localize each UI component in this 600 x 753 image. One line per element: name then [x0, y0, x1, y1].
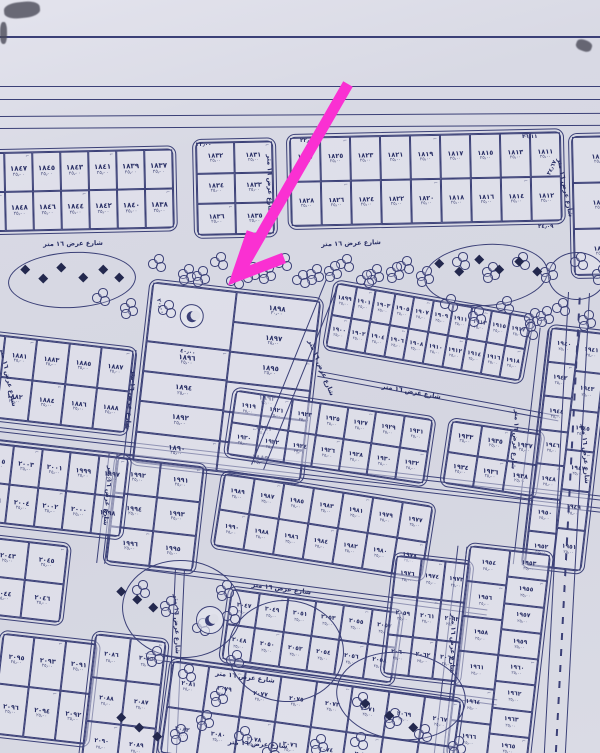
plot-number: ٢٠٠٠	[71, 505, 88, 514]
tree-icon	[292, 270, 308, 286]
scan-artifact	[575, 38, 594, 54]
plot: ١٩٢٣٢٥٫٠٠	[288, 399, 321, 435]
plot: ١٩٣٤٢٥٫٠٠	[443, 452, 477, 487]
plot-dimension: ٢٥٫٠٠	[488, 444, 499, 450]
plot-dimension: ٢٥٫٠٠	[471, 671, 481, 676]
plot: ١٨٨٤٢٥٫٠٠⌐	[28, 381, 65, 425]
road-median-dashes	[554, 297, 580, 753]
plot: ١٩١٥٢٥٫٠٠	[486, 311, 511, 346]
plot-dimension: ٢٥٫٠٠	[174, 483, 185, 489]
plot-dimension: ٢٥٫٠٠	[267, 342, 279, 348]
plot-dimension: ٢٥٫٠٠	[338, 301, 348, 307]
plot-number: ١٨٤٠	[123, 202, 140, 210]
plot-number: ١٨٢٦	[328, 197, 344, 204]
plot-number: ١٩٩٧	[104, 470, 121, 479]
plot-dimension: ٢٥٫٠٠	[401, 578, 411, 583]
plot-number: ١٨٣٤	[208, 183, 224, 190]
setback-mark: ⌐	[459, 340, 464, 346]
plot-row: ١٨٨٠٢٥٫٠٠١٨٨٢٢٥٫٠٠١٨٨٤٢٥٫٠٠⌐١٨٨٦٢٥٫٠٠١٨٨…	[0, 373, 129, 432]
plot-dimension: ٢٥٫٠٠	[358, 305, 368, 311]
setback-mark: ⌐	[35, 450, 39, 455]
plot-dimension: ٢٥٫٠٠	[173, 422, 185, 428]
plot-dimension: ٣٠٫٠٠	[270, 313, 282, 319]
plot-dimension: ٢٥٫٠٠	[586, 353, 596, 358]
plot-number: ١٩٠٧	[414, 308, 429, 317]
plot-dimension: ٢٥٫٠٠	[517, 619, 527, 624]
plot: ١٨٢٣٢٥٫٠٠	[350, 136, 381, 181]
plot-row: ١٨٧٩٢٥٫٠٠١٨٨١٢٥٫٠٠⌐١٨٨٣٢٥٫٠٠١٨٨٥٢٥٫٠٠١٨٨…	[0, 333, 133, 392]
plot: ١٩٢٨٢٥٫٠٠	[339, 439, 372, 475]
tree-icon	[146, 646, 162, 662]
plot-number: ١٨٢٢	[388, 196, 404, 203]
plot-dimension: ٢٥٫٠٠	[451, 202, 462, 207]
plot-dimension: ٢٥٫٠٠	[595, 207, 600, 212]
plot-dimension: ٢٥٫٠٠	[130, 749, 140, 753]
plot-number: ١٩٣١	[409, 427, 424, 436]
plot-number: ٢٠٤٥	[38, 557, 55, 566]
tree-icon	[192, 266, 208, 282]
plot-number: ١٩٨٨	[254, 528, 270, 537]
tree-icon	[578, 310, 594, 326]
plot: ١٩٦٢٢٥٫٠٠	[492, 681, 535, 712]
setback-mark: ⌐	[196, 469, 200, 474]
road	[96, 454, 117, 564]
plot-dimension: ٢٥٫٠٠	[361, 204, 372, 209]
plot-number: ٢٠٨٦	[104, 652, 119, 660]
plot-number: ١٨٠٦	[591, 154, 600, 161]
plot-dimension: ٢٥٫٠٠	[523, 567, 533, 572]
plot-dimension: ٢٥٫٠٠	[106, 477, 117, 483]
plot: ١٩٣٢٢٥٫٠٠⌐	[395, 447, 428, 483]
setback-mark: ⌐	[430, 641, 434, 646]
plot-number: ٢٠٦٤	[440, 654, 455, 662]
plot: ١٨١٧٢٥٫٠٠	[440, 134, 471, 179]
tree-icon	[222, 606, 238, 622]
tree-icon	[196, 710, 212, 726]
plot: ١٨٣٨٢٥٫٠٠⌐	[145, 188, 174, 228]
plot-row: ٢٠٤٤٢٥٫٠٠٢٠٤٦٢٥٫٠٠	[0, 576, 64, 623]
plot: ٢٠٠٦٢٥٫٠٠	[0, 481, 9, 523]
plot-dimension: ٢٥٫٠٠	[391, 203, 402, 208]
plot-dimension: ٢٥٫٠٠	[48, 471, 59, 477]
plot-number: ١٩٨٢	[343, 542, 359, 551]
plot-dimension: ٢٥٫٠٠	[410, 346, 420, 352]
plot: ١٨٨٥٢٥٫٠٠	[65, 343, 102, 387]
plot-number: ١٨٢٧	[297, 154, 313, 161]
tree-icon	[132, 580, 148, 596]
plot-number: ١٨١٣	[507, 149, 523, 156]
plot-number: ١٩٣٨	[512, 472, 529, 481]
plot-dimension: ٢٥٫٠٠	[69, 172, 81, 177]
plot-dimension: ٢٥٫٠٠	[36, 714, 47, 720]
plot: ١٨٨٣٢٥٫٠٠	[33, 340, 70, 384]
setback-mark: ⌐	[375, 738, 379, 743]
tree-icon	[570, 252, 586, 268]
scan-artifact	[3, 0, 40, 20]
plot-dimension: ٢٥٫٠٠	[248, 158, 259, 163]
tree-icon	[210, 252, 226, 268]
plot-number: ٢٠٩١	[71, 661, 88, 670]
plot-dimension: ٢٥٫٠٠	[104, 411, 115, 417]
plot-number: ١٩٠٨	[409, 340, 424, 349]
street-label: شارع عرض ١٦ متر	[228, 738, 288, 750]
plot: ١٨١٦٢٥٫٠٠	[471, 178, 502, 223]
crescent-icon	[203, 613, 217, 627]
plot-dimension: ٢٥٫٠٠	[320, 509, 331, 515]
plot-number: ١٩٩٨	[99, 509, 116, 518]
plot-dimension: ٢٥٫٠٠	[484, 475, 495, 481]
plot-number: ١٨٩٤	[175, 384, 193, 394]
plot-number: ٢٠٩٣	[39, 657, 56, 666]
tree-icon	[356, 270, 372, 286]
plot-dimension: ٢٥٫٠٠	[594, 161, 600, 166]
setback-mark: ⌐	[126, 352, 130, 357]
plot-number: ١٩٧٤	[424, 573, 439, 581]
plot: ١٩٩٢٢٥٫٠٠	[114, 458, 161, 497]
plot-dimension: ٢٥٫٠٠	[421, 619, 431, 624]
plot-dimension: ٢٥٫٠٠	[468, 357, 478, 363]
plot-number: ١٩٩٩	[75, 467, 92, 476]
plot-number: ٢٠٨١	[181, 680, 196, 689]
plot: ١٩١٦٢٥٫٠٠	[481, 342, 506, 377]
plot-number: ١٨٨٨	[102, 403, 119, 412]
plot: ١٩٦٠٢٥٫٠٠⌐	[495, 655, 538, 686]
tree-icon	[258, 263, 274, 279]
plot-number: ٢٠٠٢	[42, 502, 59, 511]
plot-dimension: ٢٥٫٠٠	[15, 506, 26, 512]
plot: ١٨٢٨٢٥٫٠٠	[291, 181, 322, 226]
plot-number: ١٨١٨	[448, 195, 464, 202]
plot-dimension: ٢٥٫٠٠	[72, 668, 83, 674]
plot-number: ١٩٨٦	[283, 533, 299, 542]
plot: ١٩٨٣٢٥٫٠٠	[308, 488, 343, 528]
plot-block-e2: ٢٠٤٣٢٥٫٠٠٢٠٤٥٢٥٫٠٠⌐٢٠٤٤٢٥٫٠٠٢٠٤٦٢٥٫٠٠	[0, 537, 69, 624]
plot-dimension: ٢٥٫٠٠	[77, 366, 88, 372]
plot: ١٩٢٥٢٥٫٠٠	[316, 403, 349, 439]
crescent-icon	[185, 310, 198, 323]
plot-dimension: ٢٥٫٠٠	[377, 308, 387, 314]
road	[123, 350, 145, 458]
plot: ١٨٤٨٢٥٫٠٠	[5, 191, 34, 231]
plot: ١٨٩٢٢٥٫٠٠	[136, 401, 223, 441]
plot-number: ٢٠٤٤	[0, 590, 12, 599]
setback-mark: ⌐	[223, 352, 227, 357]
plot-dimension: ٢٥٫٠٠	[124, 547, 135, 553]
setback-mark: ⌐	[330, 529, 335, 535]
tree-icon	[452, 252, 468, 268]
plot-row: ٢٠٩٠٢٥٫٠٠⌐٢٠٨٩٢٥٫٠٠	[81, 720, 155, 753]
plot: ١٩٣٨٢٥٫٠٠	[503, 461, 537, 496]
plot: ١٩٧٦٢٥٫٠٠	[392, 556, 421, 598]
plot: ١٨٢٥٢٥٫٠٠⌐	[320, 137, 351, 182]
tree-icon	[448, 736, 464, 752]
plot-dimension: ٢٥٫٠٠	[40, 564, 51, 570]
plot-number: ١٩٠٩	[433, 312, 448, 321]
dimension-note: ٢٢٫٠٠	[196, 142, 211, 148]
plot-number: ١٩٣٣	[457, 432, 474, 441]
plot-dimension: ٢٥٫٠٠	[507, 363, 517, 369]
setback-mark: ⌐	[420, 453, 424, 459]
plot: ١٩٩٩٢٥٫٠٠	[67, 452, 100, 494]
plot-dimension: ٢٥٫٠٠	[96, 745, 106, 750]
plot-number: ١٩٨٩	[230, 488, 246, 497]
plot-number: ١٨٨٣	[43, 355, 60, 364]
plot-dimension: ٢٥٫٠٠	[132, 478, 143, 484]
plot-dimension: ٢٥٫٠٠	[77, 474, 88, 480]
setback-mark: ⌐	[296, 452, 300, 457]
setback-mark: ⌐	[277, 484, 282, 490]
plot-dimension: ٢٥٫٠٠	[238, 441, 249, 447]
plot: ١٨٢٧٢٥٫٠٠	[290, 137, 321, 182]
plot-dimension: ٢٥٫٠٠	[540, 156, 551, 161]
plot-dimension: ٢٥٫٠٠	[344, 549, 355, 555]
plot: ٢٠٤٥٢٥٫٠٠⌐	[25, 542, 68, 584]
plot-dimension: ٢٥٫٠٠	[420, 158, 431, 163]
plot-dimension: ٢٥٫٠٠	[397, 617, 407, 622]
setback-mark: ⌐	[434, 181, 438, 186]
plot-number: ١٨٢٠	[418, 195, 434, 202]
setback-mark: ⌐	[58, 642, 62, 647]
tree-icon	[592, 264, 600, 280]
plot: ١٩٢٧٢٥٫٠٠⌐	[344, 407, 377, 443]
plot-dimension: ٢٥٫٠٠	[73, 513, 84, 519]
plot-number: ١٩٩٢	[130, 471, 147, 480]
setback-mark: ⌐	[433, 137, 437, 142]
plot-number: ١٩٥٠	[537, 509, 552, 517]
plot: ١٩٠٨٢٥٫٠٠	[403, 329, 428, 364]
plot-number: ١٨٨٦	[70, 400, 87, 409]
plot-dimension: ٢٥٫٠٠	[493, 328, 503, 334]
plot-number: ١٩٣٠	[376, 455, 391, 464]
setback-mark: ⌐	[212, 442, 216, 447]
setback-mark: ⌐	[365, 498, 370, 504]
plot-dimension: ٢٥٫٠٠	[13, 173, 25, 178]
setback-mark: ⌐	[539, 583, 543, 588]
plot-dimension: ٢٥٫٠٠	[403, 558, 414, 564]
plot: ١٩٩٨٢٥٫٠٠	[91, 494, 124, 536]
tree-icon	[160, 596, 176, 612]
plot-number: ١٨٩٢	[171, 414, 189, 424]
setback-mark: ⌐	[517, 350, 522, 356]
plot-dimension: ٢٥٫٠٠	[547, 448, 557, 453]
plot-number: ١٩٦٣	[503, 716, 518, 724]
plot: ١٩٨٥٢٥٫٠٠	[279, 483, 314, 523]
plot: ١٩٩٦٢٥٫٠٠⌐	[106, 527, 153, 566]
plot-number: ١٨٤٢	[95, 203, 112, 211]
plot: ١٨٢١٢٥٫٠٠	[380, 135, 411, 180]
setback-mark: ⌐	[60, 548, 64, 553]
plot-row: ١٨٠٦٢٥٫٠٠	[572, 136, 600, 183]
plot-dimension: ٢٥٫٠٠	[333, 333, 343, 339]
tree-icon	[148, 254, 164, 270]
plot: ٢٠٤٣٢٥٫٠٠	[0, 538, 29, 580]
plot-dimension: ٢٥٫٠٠	[128, 513, 139, 519]
plot-number: ٢٠٠٣	[18, 460, 35, 469]
plot: ٢٠٠٠٢٥٫٠٠	[62, 491, 95, 533]
plot-dimension: ٢٥٫٠٠	[231, 495, 242, 501]
setback-mark: ⌐	[53, 692, 57, 697]
plot-number: ٢٠٦١	[420, 613, 435, 621]
plot-dimension: ٢٥٫٠٠	[20, 468, 31, 474]
plot: ١٩٥٢٢٥٫٠٠	[525, 531, 557, 568]
plot-number: ١٨٤١	[94, 164, 111, 172]
plot: ٢٠٤٦٢٥٫٠٠	[21, 580, 64, 622]
plot-number: ٢٠٨٩	[129, 742, 144, 750]
street-label: شارع عرض ١٦ متر	[556, 158, 575, 218]
plot-dimension: ٢٥٫٠٠	[36, 602, 47, 608]
plot-number: ١٨١٢	[538, 193, 554, 200]
plot: ١٩٥٧٢٥٫٠٠	[501, 603, 544, 634]
mosque-icon	[178, 303, 205, 330]
plot-dimension: ٢٥٫٠٠	[42, 212, 54, 217]
plot-dimension: ٢٥٫٠٠	[2, 560, 13, 566]
plot-dimension: ٢٥٫٠٠	[378, 629, 389, 634]
plot-dimension: ٢٥٫٠٠	[511, 671, 521, 676]
road	[513, 328, 550, 566]
plot-number: ١٩٩٣	[168, 510, 185, 519]
plot: ١٩٣٠٢٥٫٠٠	[367, 443, 400, 479]
plot-dimension: ٢٥٫٠٠	[435, 318, 445, 324]
plot-number: ١٨٢١	[387, 152, 403, 159]
plot-dimension: ٢٥٫٠٠	[459, 439, 470, 445]
tree-icon	[520, 322, 536, 338]
dimension-note: ٣٤٫٦٧	[546, 160, 558, 177]
plot: ١٩٠١٢٥٫٠٠⌐	[351, 287, 376, 322]
plot: ١٩٥٥٢٥٫٠٠⌐	[504, 577, 547, 608]
plot: ١٩٨٧٢٥٫٠٠⌐	[249, 479, 284, 519]
plot-number: ١٩٦١	[469, 664, 484, 672]
plot-dimension: ٢٥٫٠٠	[290, 702, 301, 707]
setback-mark: ⌐	[522, 739, 526, 744]
plot-number: ١٨٤٤	[67, 204, 84, 212]
plot-number: ١٨٣٢	[207, 152, 223, 159]
plot-dimension: ٢٥٫٠٠	[249, 189, 260, 194]
plot-dimension: ٢٥٫٠٠	[374, 554, 385, 560]
plot: ١٨٢٤٢٥٫٠٠	[351, 180, 382, 225]
plot-dimension: ٢٥٫٠٠	[210, 159, 221, 164]
plot-row: ١٩٩٢٢٥٫٠٠١٩٩١٢٥٫٠٠⌐	[114, 458, 203, 502]
plot-dimension: ٢٥٫٠٠	[550, 415, 560, 420]
tree-icon	[496, 296, 512, 312]
plot-row: ١٩٩٤٢٥٫٠٠١٩٩٣٢٥٫٠٠	[110, 492, 199, 536]
tree-icon	[536, 306, 552, 322]
plot-number: ١٨٢٥	[327, 153, 343, 160]
setback-mark: ⌐	[336, 440, 340, 446]
plot-number: ١٩٥٢	[533, 543, 548, 551]
tree-icon	[552, 298, 568, 314]
plot-dimension: ٢٥٫٠٠	[429, 350, 439, 356]
plot: ١٩٦٥٢٥٫٠٠⌐	[486, 733, 529, 753]
plot-number: ١٨٩٥	[261, 364, 279, 374]
setback-mark: ⌐	[504, 431, 508, 437]
plot-dimension: ٢٥٫٠٠	[479, 601, 489, 606]
setback-mark: ⌐	[252, 428, 256, 434]
road	[0, 432, 600, 516]
park-outline	[225, 596, 348, 706]
tree-icon	[226, 650, 242, 666]
plot-dimension: ٢٥٫٠٠	[300, 161, 311, 166]
plot-number: ٢٠٨٧	[133, 699, 148, 707]
plot-number: ١٩٢٠	[236, 434, 251, 443]
plot-dimension: ٢٥٫٠٠	[502, 749, 512, 753]
plot: ١٩٧٢٢٥٫٠٠	[441, 561, 470, 603]
plot-block-k1: ٢٠٩٥٢٥٫٠٠٢٠٩٣٢٥٫٠٠⌐٢٠٩١٢٥٫٠٠٢٠٩٦٢٥٫٠٠٢٠٩…	[0, 633, 98, 745]
plot-number: ٢٠٤٣	[0, 552, 16, 561]
plot-number: ١٨١١	[537, 149, 553, 156]
plot: ٢٠٦٣٢٥٫٠٠	[437, 601, 466, 643]
plot-row: ١٨٠٨٢٥٫٠٠⌐	[573, 182, 600, 229]
dimension-note: ٣٦٫١١	[522, 134, 537, 140]
setback-mark: ⌐	[487, 691, 491, 696]
plot-number: ١٩٢٩	[381, 423, 396, 432]
plot-number: ١٩٢٧	[353, 419, 368, 428]
setback-mark: ⌐	[426, 301, 431, 307]
plot-dimension: ٢٥٫٠٠	[70, 211, 82, 216]
scan-artifact	[0, 22, 7, 44]
street-label: شارع عرض ١٦ متر	[381, 382, 441, 401]
street-label: شارع عرض ١٦ متر	[251, 581, 311, 597]
plot-dimension: ٢٥٫٠٠	[109, 370, 120, 376]
plot: ١٩٨٠٢٥٫٠٠	[362, 533, 397, 573]
plot-number: ١٨٨٤	[38, 396, 55, 405]
dimension-note: ٤٠٫٠٠	[179, 348, 195, 357]
plot-number: ١٨٤٥	[38, 165, 55, 173]
plot-number: ١٩٠١	[356, 298, 371, 307]
plot-dimension: ٢٥٫٠٠	[14, 212, 26, 217]
plot: ١٩٩٤٢٥٫٠٠	[110, 492, 157, 531]
plot-number: ١٨٣٨	[151, 202, 168, 210]
plot: ١٨٤٤٢٥٫٠٠⌐	[61, 190, 90, 230]
plot: ١٨٣٣٢٥٫٠٠	[235, 172, 274, 203]
plot: ١٨٢٠٢٥٫٠٠⌐	[411, 179, 442, 224]
plot: ٢٠٠٥٢٥٫٠٠	[0, 443, 14, 485]
plot: ١٨١٨٢٥٫٠٠	[441, 178, 472, 223]
plot: ١٨٣١٢٥٫٠٠⌐	[234, 141, 273, 172]
road	[317, 371, 559, 422]
plot-dimension: ٢٥٫٠٠	[543, 482, 553, 487]
plot-number: ١٨٣٧	[150, 163, 167, 171]
plot-dimension: ٢٥٫٠٠	[454, 322, 464, 328]
plot: ١٨٩٠٢٥٫٠٠⌐	[133, 431, 220, 471]
plot-dimension: ٢٥٫٠٠	[98, 211, 110, 216]
plot-dimension: ٢٥٫٠٠	[170, 452, 182, 458]
plot: ١٩٩٠٢٥٫٠٠⌐	[214, 510, 249, 550]
plot-dimension: ٢٥٫٠٠	[314, 544, 325, 550]
setback-mark: ⌐	[369, 413, 373, 419]
tree-icon	[386, 262, 402, 278]
plot-block-a3: ١٨٢٧٢٥٫٠٠١٨٢٥٢٥٫٠٠⌐١٨٢٣٢٥٫٠٠١٨٢١٢٥٫٠٠١٨١…	[289, 131, 563, 227]
plot: ١٩٠٥٢٥٫٠٠	[390, 294, 415, 329]
plot: ١٩٠٧٢٥٫٠٠⌐	[409, 297, 434, 332]
plot-dimension: ٢٥٫٠٠	[449, 353, 459, 359]
plot-dimension: ٢٥٫٠٠	[416, 315, 426, 321]
plot-dimension: ٢٥٫٠٠	[67, 718, 78, 724]
plot-number: ١٨٣٦	[209, 213, 225, 220]
plot-dimension: ٢٥٫٠٠	[5, 711, 16, 717]
plot: ١٩٧٧٢٥٫٠٠	[397, 502, 432, 542]
setback-mark: ⌐	[499, 462, 503, 468]
plot-dimension: ٢٥٫٠٠	[125, 171, 137, 176]
road	[0, 86, 600, 100]
setback-mark: ⌐	[499, 587, 503, 592]
dimension-note: ٢٢٫٠٠	[300, 138, 315, 144]
plot-number: ١٨٨٧	[107, 363, 124, 372]
plot: ١٨٨٧٢٥٫٠٠⌐	[97, 347, 134, 391]
plot-number: ١٨٣٣	[246, 182, 262, 189]
plot: ٢٠٩٥٢٥٫٠٠	[0, 634, 35, 687]
plot-number: ١٨١٠	[593, 246, 600, 253]
tree-icon	[440, 294, 456, 310]
